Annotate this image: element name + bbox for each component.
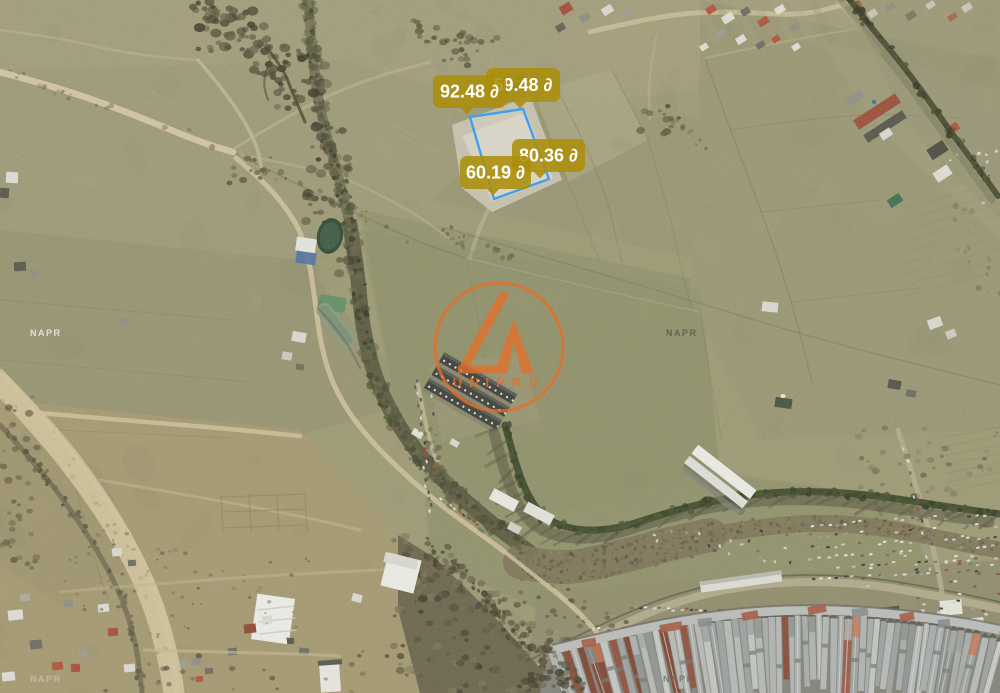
svg-text:92.48 ∂: 92.48 ∂ [440, 82, 499, 102]
svg-text:NAPR: NAPR [30, 328, 62, 338]
svg-text:NAPR: NAPR [30, 674, 62, 684]
svg-text:60.19 ∂: 60.19 ∂ [466, 163, 525, 183]
svg-text:NAPR: NAPR [663, 674, 695, 684]
svg-text:UNIPRO: UNIPRO [453, 375, 546, 390]
svg-text:NAPR: NAPR [666, 328, 698, 338]
